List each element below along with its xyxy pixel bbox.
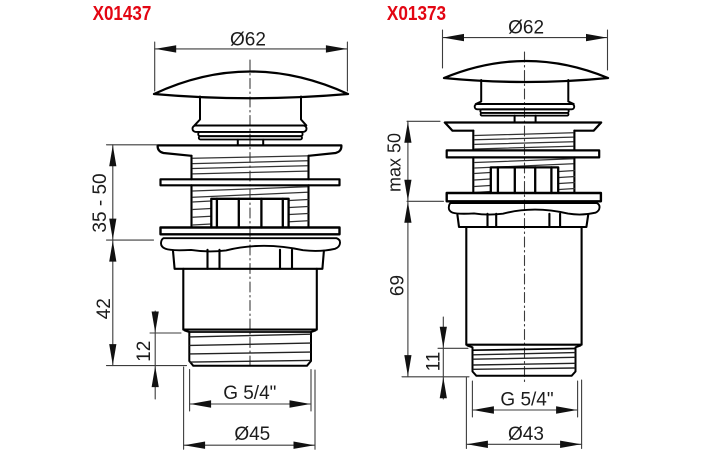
svg-text:X01437: X01437 bbox=[93, 2, 152, 25]
svg-text:Ø62: Ø62 bbox=[508, 18, 544, 39]
svg-text:G 5/4": G 5/4" bbox=[500, 390, 553, 411]
svg-text:Ø45: Ø45 bbox=[234, 424, 270, 445]
svg-text:max 50: max 50 bbox=[384, 133, 404, 192]
svg-text:Ø43: Ø43 bbox=[508, 424, 544, 445]
svg-text:11: 11 bbox=[423, 352, 444, 372]
svg-text:X01373: X01373 bbox=[387, 2, 446, 25]
svg-text:12: 12 bbox=[134, 341, 155, 362]
svg-text:35 - 50: 35 - 50 bbox=[90, 173, 111, 232]
svg-text:42: 42 bbox=[94, 298, 115, 319]
svg-text:Ø62: Ø62 bbox=[230, 30, 266, 51]
svg-text:69: 69 bbox=[388, 275, 409, 296]
svg-text:G 5/4": G 5/4" bbox=[223, 383, 276, 404]
